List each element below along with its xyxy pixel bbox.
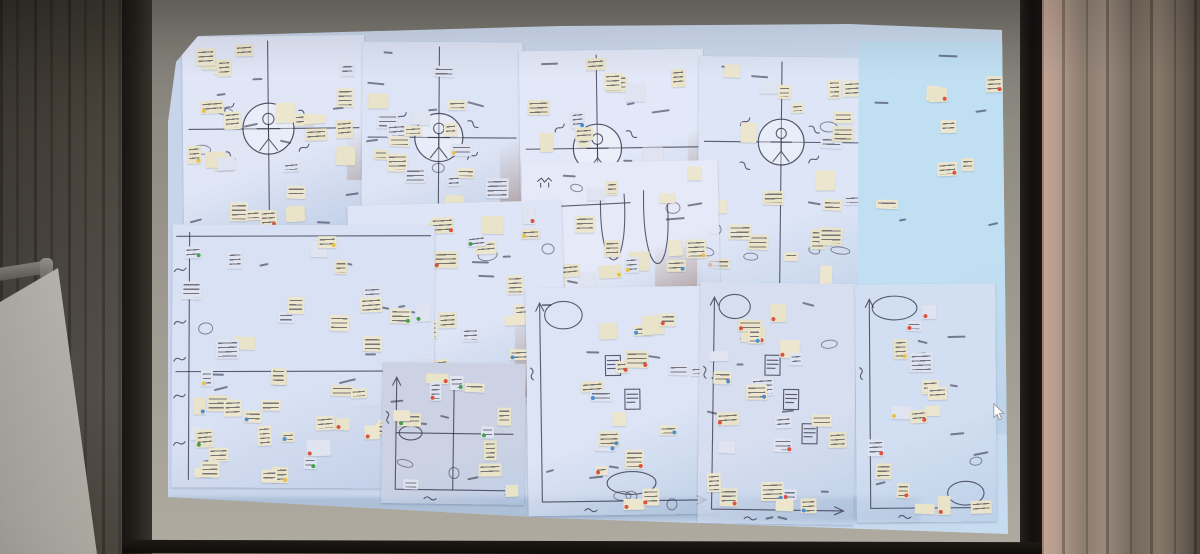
sticky-note xyxy=(570,111,585,128)
sticky-note xyxy=(414,304,430,322)
vote-dot-yellow xyxy=(892,414,896,418)
empathy-4-sheet xyxy=(697,56,876,316)
sticky-note xyxy=(439,312,458,329)
vote-dot-blue xyxy=(201,409,205,413)
sticky-note xyxy=(194,397,206,414)
vote-dot-green xyxy=(196,442,200,446)
sticky-note xyxy=(800,498,816,513)
sticky-note xyxy=(875,463,891,479)
vote-dot-yellow xyxy=(702,253,706,257)
matrix-3-sheet xyxy=(697,282,856,525)
vote-dot-blue xyxy=(726,379,730,383)
sticky-note xyxy=(393,411,410,423)
sticky-note xyxy=(719,489,737,507)
vote-dot-red xyxy=(907,326,911,330)
vote-dot-red xyxy=(718,420,722,424)
vote-dot-red xyxy=(430,395,434,399)
mouse-cursor xyxy=(992,403,1006,421)
vote-dot-green xyxy=(405,318,409,322)
matrix-1-sheet xyxy=(381,362,526,505)
vote-dot-blue xyxy=(614,442,618,446)
sticky-note xyxy=(748,328,762,344)
sticky-note xyxy=(812,415,832,428)
sticky-note xyxy=(196,48,215,65)
sticky-note xyxy=(363,336,382,352)
sticky-note xyxy=(351,388,367,398)
sticky-note xyxy=(774,416,792,429)
vote-dot-green xyxy=(482,434,486,438)
handwriting-mark xyxy=(365,353,376,355)
sticky-note xyxy=(815,170,836,190)
sticky-note xyxy=(763,190,785,204)
sticky-note xyxy=(925,406,940,416)
sticky-note xyxy=(187,146,202,164)
sticky-note xyxy=(789,353,802,365)
vote-dot-yellow xyxy=(202,382,206,386)
vote-dot-red xyxy=(661,322,665,326)
sticky-note xyxy=(823,199,843,212)
sticky-note xyxy=(465,383,485,393)
sticky-note xyxy=(336,146,356,165)
sticky-note xyxy=(606,181,619,195)
sticky-note xyxy=(891,406,912,420)
sticky-note xyxy=(915,504,936,515)
vote-dot-red xyxy=(904,493,908,497)
vote-dot-red xyxy=(307,451,311,455)
sticky-note xyxy=(228,251,243,268)
sticky-note xyxy=(444,123,457,136)
sticky-note xyxy=(625,449,644,469)
sticky-note xyxy=(659,425,677,435)
sticky-note xyxy=(604,240,620,257)
sticky-note xyxy=(716,412,739,426)
sticky-note xyxy=(201,100,225,114)
vote-dot-red xyxy=(444,379,448,383)
sticky-note xyxy=(456,168,475,179)
sticky-note xyxy=(521,228,541,239)
sticky-note xyxy=(599,322,618,339)
vote-dot-blue xyxy=(634,331,638,335)
vote-dot-red xyxy=(780,353,784,357)
sticky-note xyxy=(828,79,842,98)
sticky-note xyxy=(287,296,304,314)
sticky-note xyxy=(230,203,248,222)
sticky-note xyxy=(201,370,213,386)
sticky-note xyxy=(625,257,640,274)
vote-dot-blue xyxy=(801,508,805,512)
sticky-note xyxy=(834,112,853,124)
sticky-note xyxy=(761,482,784,501)
sticky-note xyxy=(478,463,501,476)
handwriting-mark xyxy=(432,163,445,173)
sticky-note xyxy=(485,179,508,199)
vote-dot-yellow xyxy=(903,354,907,358)
sticky-note xyxy=(467,235,487,247)
sticky-note xyxy=(829,432,847,448)
sticky-note xyxy=(832,126,853,142)
sticky-note xyxy=(316,416,336,431)
vote-dot-green xyxy=(399,422,403,426)
vote-dot-yellow xyxy=(617,272,621,276)
sticky-note xyxy=(523,206,536,224)
vote-dot-yellow xyxy=(202,109,206,113)
sticky-note xyxy=(450,376,464,390)
sticky-note xyxy=(667,259,686,271)
sticky-note xyxy=(257,426,272,446)
vote-dot-red xyxy=(639,464,643,468)
vote-dot-red xyxy=(596,470,600,474)
sticky-note xyxy=(216,339,239,358)
sticky-note xyxy=(261,400,282,412)
sticky-note xyxy=(481,427,495,439)
sticky-note xyxy=(303,457,317,470)
sticky-note xyxy=(276,103,296,123)
sticky-note xyxy=(642,488,659,506)
sticky-note xyxy=(667,240,682,257)
curtain-right xyxy=(1042,0,1200,554)
sticky-note xyxy=(760,83,778,95)
sticky-note xyxy=(527,100,549,115)
sticky-note xyxy=(604,73,621,90)
vote-dot-yellow xyxy=(626,269,630,273)
sticky-note xyxy=(390,308,412,324)
sticky-note xyxy=(434,65,456,77)
sticky-note xyxy=(708,350,728,360)
sticky-note xyxy=(595,466,609,476)
handwriting-mark xyxy=(736,363,743,365)
sticky-note xyxy=(778,84,792,98)
vote-dot-red xyxy=(788,447,792,451)
sticky-note xyxy=(217,157,235,171)
vote-dot-red xyxy=(530,219,534,223)
sticky-note xyxy=(746,385,767,400)
sticky-note xyxy=(910,353,934,372)
sticky-note xyxy=(660,193,676,203)
sticky-note xyxy=(208,447,228,461)
sticky-note xyxy=(928,386,948,400)
vote-dot-green xyxy=(469,242,473,246)
sticky-note xyxy=(785,252,799,262)
sticky-note xyxy=(937,162,958,177)
vote-dot-red xyxy=(643,500,647,504)
sticky-note xyxy=(906,321,921,331)
sticky-note xyxy=(770,304,786,323)
sticky-note xyxy=(235,44,254,56)
vote-dot-green xyxy=(459,385,463,389)
vote-dot-red xyxy=(739,326,743,330)
vote-dot-blue xyxy=(245,417,249,421)
sticky-note xyxy=(504,315,527,326)
sticky-note xyxy=(910,410,928,424)
vote-dot-blue xyxy=(511,356,515,360)
sticky-note xyxy=(337,88,354,107)
sticky-note xyxy=(668,363,688,375)
sticky-note xyxy=(317,236,336,248)
sticky-note xyxy=(625,84,645,102)
sticky-note xyxy=(497,407,512,425)
sticky-note xyxy=(937,496,950,515)
vote-dot-red xyxy=(943,97,947,101)
vote-dot-red xyxy=(998,87,1002,91)
vote-dot-red xyxy=(922,418,926,422)
sticky-note xyxy=(283,161,300,172)
sticky-note xyxy=(612,411,626,425)
matrix-2-sheet xyxy=(525,286,716,517)
sticky-note xyxy=(713,371,732,385)
vote-dot-blue xyxy=(681,266,685,270)
vote-dot-green xyxy=(196,253,200,257)
vote-dot-blue xyxy=(672,430,676,434)
sticky-note xyxy=(429,382,441,401)
handwriting-mark xyxy=(253,78,263,80)
sticky-note xyxy=(687,166,702,180)
matrix-4-sheet xyxy=(855,284,997,523)
sticky-note xyxy=(305,128,327,141)
vote-dot-blue xyxy=(611,447,615,451)
vote-dot-yellow xyxy=(331,242,335,246)
vote-dot-red xyxy=(644,363,648,367)
sticky-note xyxy=(340,63,354,76)
sticky-note xyxy=(867,440,884,457)
sticky-note xyxy=(971,500,992,513)
vote-dot-red xyxy=(625,504,629,508)
sticky-note xyxy=(574,127,593,141)
sticky-note xyxy=(540,133,554,152)
sticky-note xyxy=(774,438,793,452)
sticky-note xyxy=(820,265,833,285)
sticky-note xyxy=(686,239,706,258)
sticky-note xyxy=(660,313,676,327)
vote-dot-red xyxy=(435,263,439,267)
sticky-note xyxy=(360,297,383,313)
sticky-note xyxy=(223,111,241,130)
vote-dot-green xyxy=(416,317,420,321)
sticky-note xyxy=(261,470,278,483)
sticky-note xyxy=(334,260,347,274)
flipchart-easel xyxy=(0,250,110,554)
vote-dot-red xyxy=(337,425,341,429)
sticky-note xyxy=(243,411,262,423)
sticky-note xyxy=(200,461,219,477)
vote-dot-blue xyxy=(282,437,286,441)
sticky-note xyxy=(505,485,518,498)
sticky-note xyxy=(775,498,794,511)
sticky-note xyxy=(271,367,287,384)
vote-dot-blue xyxy=(762,395,766,399)
sticky-note xyxy=(599,431,620,446)
vote-dot-red xyxy=(449,229,453,233)
sticky-note xyxy=(575,216,595,233)
handwriting-mark xyxy=(743,253,758,261)
vote-dot-red xyxy=(623,368,627,372)
vote-dot-yellow xyxy=(196,159,200,163)
sticky-note xyxy=(790,103,803,113)
vote-dot-red xyxy=(365,434,369,438)
sticky-note xyxy=(405,167,426,182)
sticky-note xyxy=(922,304,936,318)
sticky-note xyxy=(389,136,410,147)
handwriting-mark xyxy=(875,101,889,103)
sticky-note xyxy=(586,58,606,71)
sticky-note xyxy=(462,327,480,341)
sticky-note xyxy=(411,112,431,126)
empathy-1-sheet xyxy=(182,35,366,234)
sticky-note xyxy=(625,350,649,367)
vote-dot-red xyxy=(732,502,736,506)
flipchart-pad xyxy=(0,250,110,554)
sticky-note xyxy=(724,64,740,78)
sticky-note xyxy=(224,400,242,417)
sticky-note xyxy=(373,149,388,160)
sticky-note xyxy=(587,188,605,200)
vote-dot-yellow xyxy=(283,478,287,482)
sticky-note xyxy=(894,339,908,359)
sticky-note xyxy=(329,315,350,332)
vote-dot-red xyxy=(923,314,927,318)
sticky-note xyxy=(484,440,497,460)
vote-dot-yellow xyxy=(451,151,455,155)
sticky-note xyxy=(941,120,958,133)
sticky-note xyxy=(985,76,1003,92)
sticky-note xyxy=(217,59,232,77)
sticky-note xyxy=(285,206,305,222)
sticky-note xyxy=(740,122,757,142)
vote-dot-blue xyxy=(756,339,760,343)
vote-dot-red xyxy=(772,317,776,321)
sticky-note xyxy=(434,251,458,268)
sticky-note xyxy=(364,425,379,439)
sticky-note xyxy=(896,483,909,498)
sticky-note xyxy=(335,120,353,139)
sticky-note xyxy=(404,125,422,135)
sticky-note xyxy=(304,114,326,125)
sticky-note xyxy=(729,224,753,240)
sticky-note xyxy=(599,264,623,278)
sticky-note xyxy=(450,144,472,157)
sticky-note xyxy=(590,390,612,402)
sticky-note xyxy=(286,186,305,200)
sticky-note xyxy=(819,227,843,246)
sticky-note xyxy=(306,439,330,456)
sticky-note xyxy=(718,440,736,453)
sticky-note xyxy=(482,216,504,234)
vote-dot-yellow xyxy=(522,234,526,238)
sticky-note xyxy=(929,88,949,103)
sticky-note xyxy=(184,246,201,258)
vote-dot-green xyxy=(311,464,315,468)
sticky-note xyxy=(195,429,214,447)
vote-dot-red xyxy=(939,509,943,513)
handwriting-mark xyxy=(562,174,575,176)
sticky-note xyxy=(403,480,418,490)
sticky-note xyxy=(336,418,351,431)
sticky-note xyxy=(448,100,466,110)
sticky-note xyxy=(369,93,389,108)
sticky-note xyxy=(506,275,523,294)
sticky-note xyxy=(876,200,898,210)
vote-dot-red xyxy=(952,171,956,175)
vote-dot-red xyxy=(879,452,883,456)
sticky-note xyxy=(671,69,686,87)
sticky-note xyxy=(181,281,201,299)
conference-room-photo xyxy=(0,0,1200,554)
sticky-note xyxy=(281,432,294,442)
screen-frame-bottom xyxy=(52,540,1098,554)
vote-dot-blue xyxy=(591,396,595,400)
sticky-note xyxy=(961,158,974,171)
sticky-note xyxy=(707,473,721,492)
